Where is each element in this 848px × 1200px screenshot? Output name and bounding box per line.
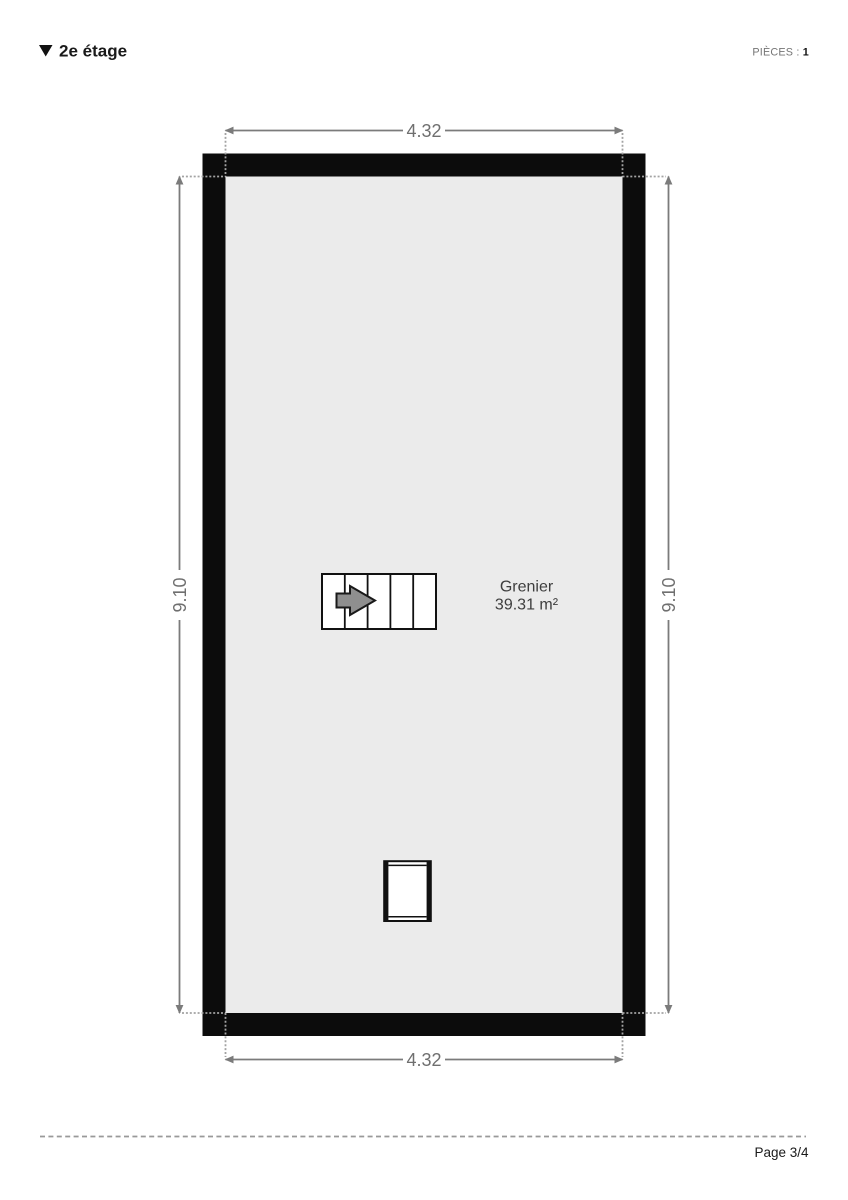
svg-text:2e étage: 2e étage [59, 42, 127, 61]
svg-text:4.32: 4.32 [406, 121, 441, 141]
svg-text:39.31 m²: 39.31 m² [495, 597, 559, 614]
svg-text:9.10: 9.10 [170, 577, 190, 612]
svg-text:9.10: 9.10 [659, 577, 679, 612]
svg-text:PIÈCES : 1: PIÈCES : 1 [752, 46, 809, 59]
svg-text:Grenier: Grenier [500, 579, 554, 596]
svg-text:4.32: 4.32 [406, 1050, 441, 1070]
svg-text:Page 3/4: Page 3/4 [754, 1145, 809, 1160]
